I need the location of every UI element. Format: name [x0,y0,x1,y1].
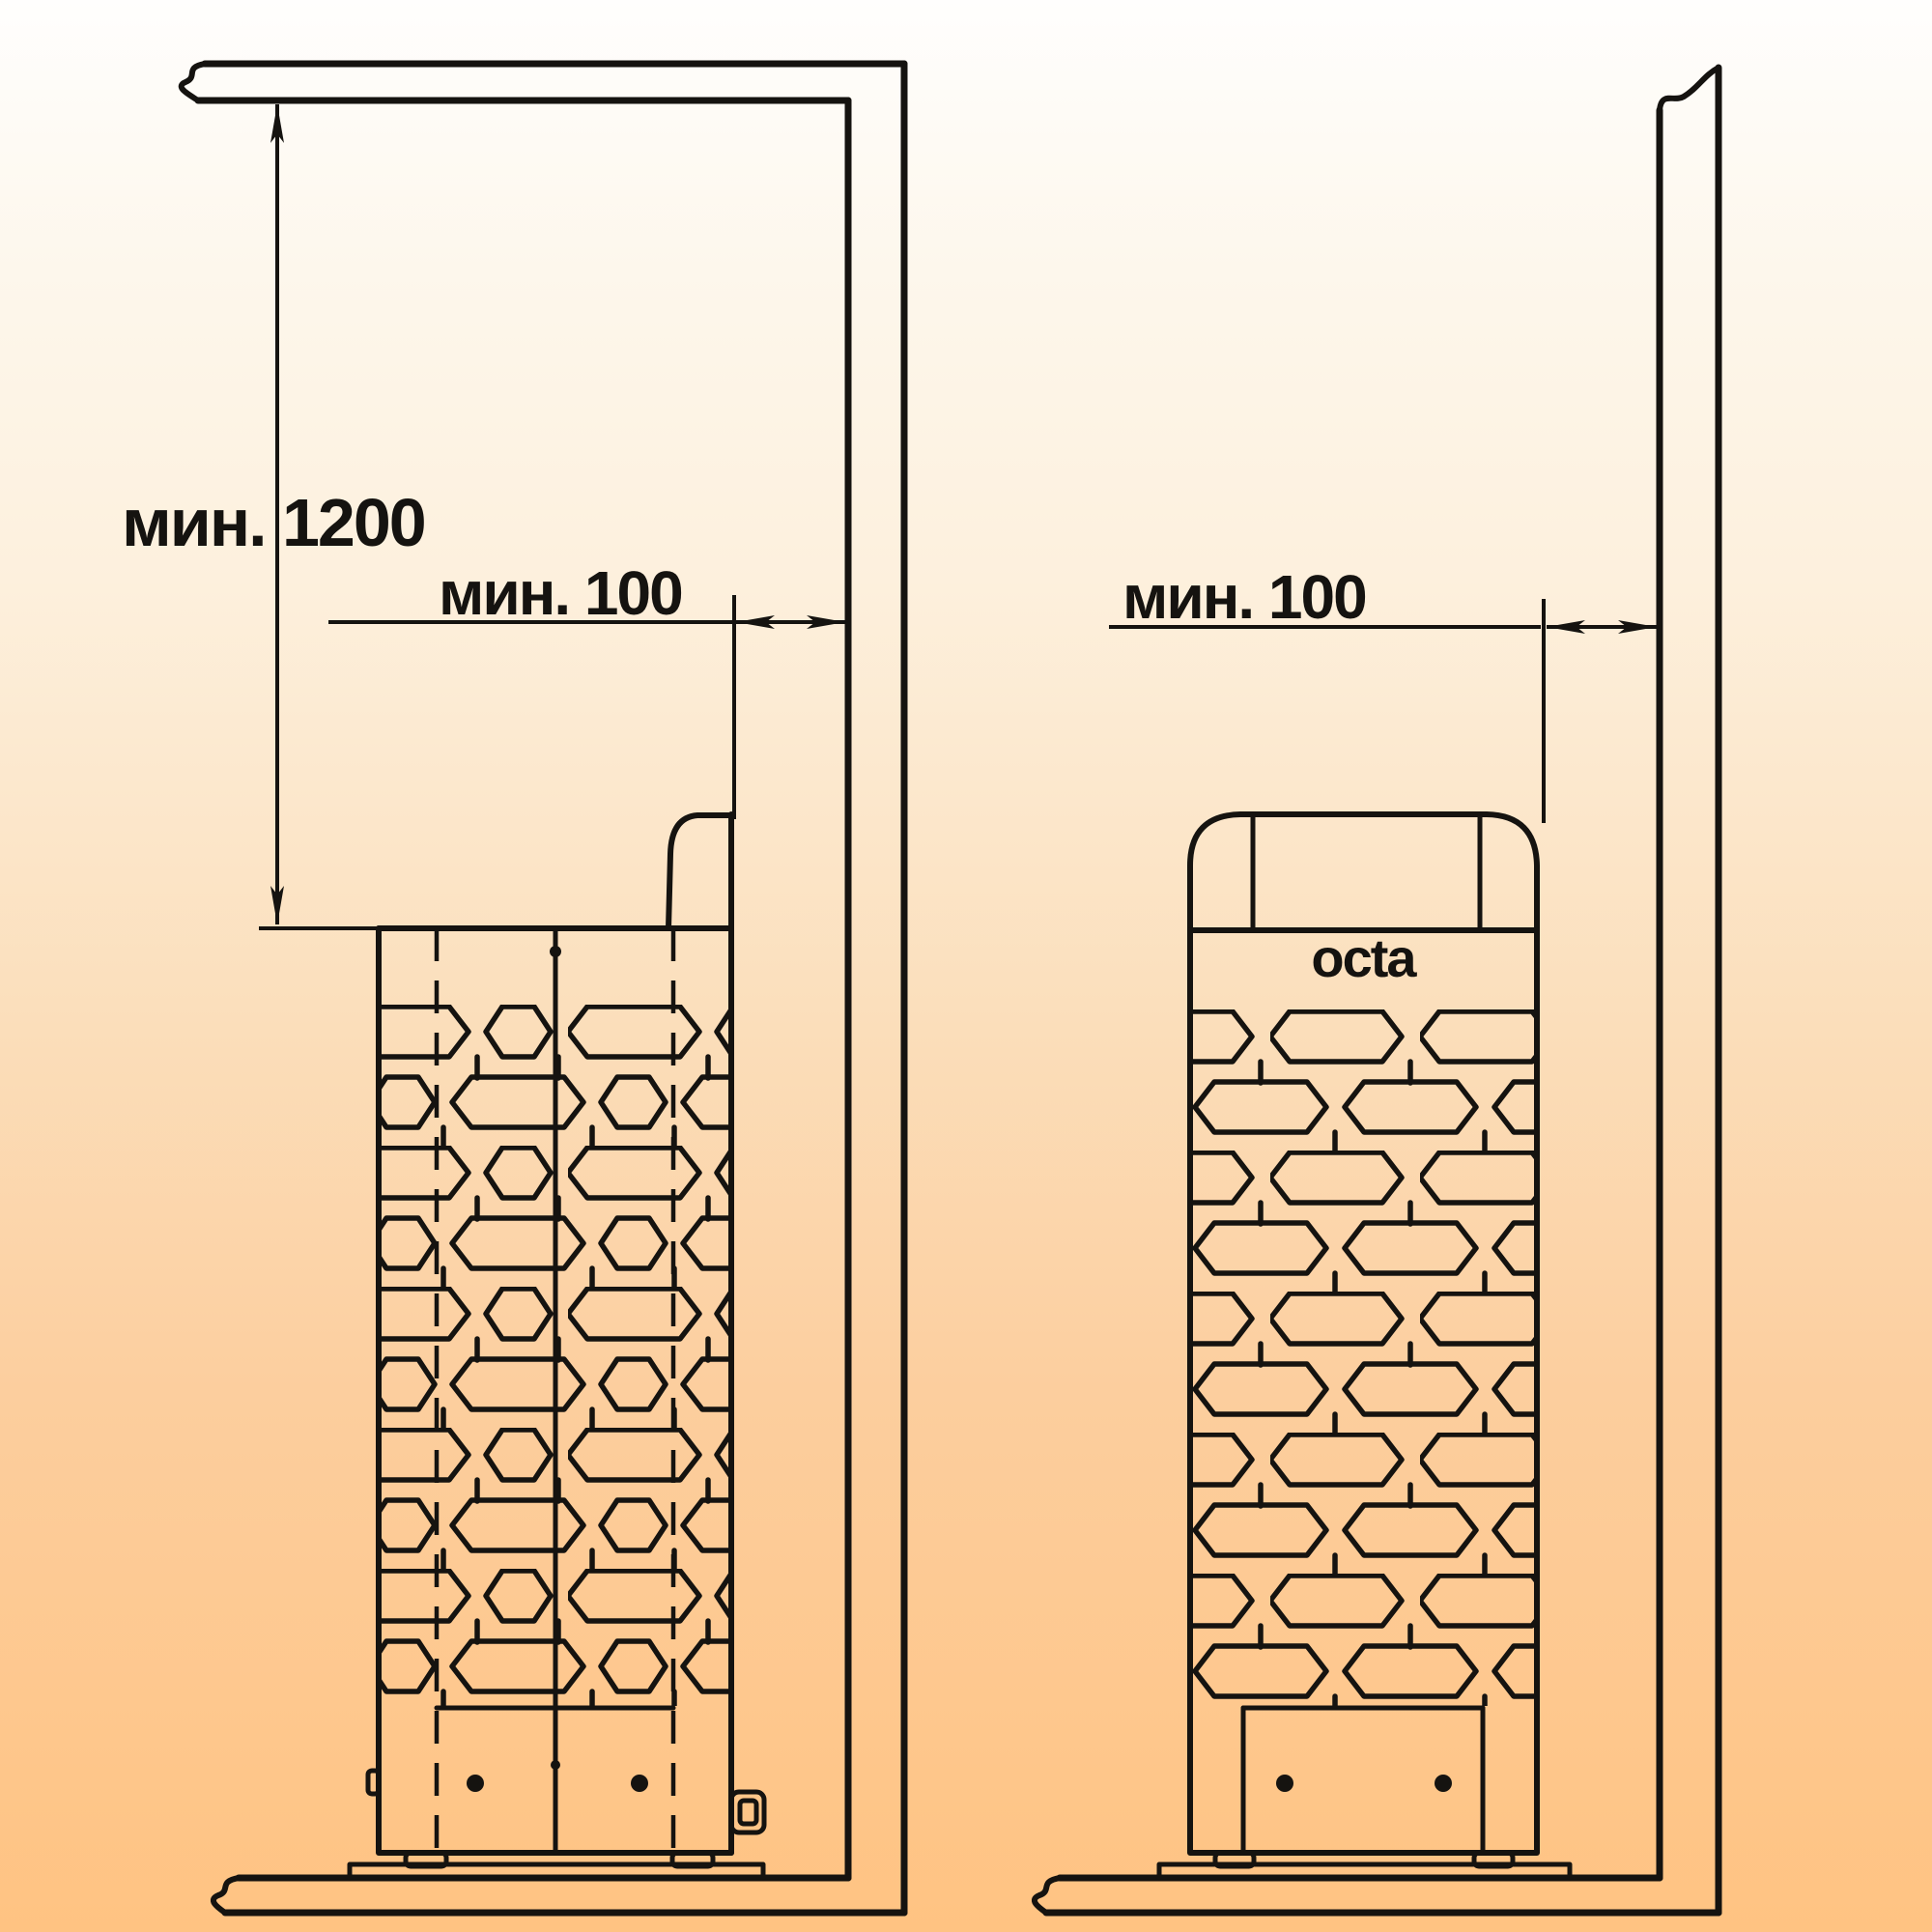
ceiling [182,64,904,100]
line-art [0,0,1932,1932]
base-screw [1276,1775,1293,1792]
top-cap [1190,814,1537,930]
left-view [182,64,904,1913]
heater-side-view [259,814,764,1878]
horizontal-dimension-min-100-right [1109,599,1657,823]
wall-section-left-view [848,64,904,1913]
min-wall-clearance-label-left: мин. 100 [439,562,682,624]
floor-left-view [213,1878,904,1913]
base-screw [631,1775,648,1792]
floor-break-mark [1035,1878,1060,1913]
floor-break-mark [213,1878,239,1913]
stone-grill-lattice [1193,1009,1534,1706]
base-screw [1435,1775,1452,1792]
right-view [1035,68,1719,1913]
wall-break-mark [1660,68,1719,110]
min-height-clearance-label: мин. 1200 [122,489,425,556]
octa-brand-logo: octa [1286,931,1440,985]
cable-connector [731,1792,764,1833]
floor-right-view [1035,1878,1719,1913]
air-deflector [668,815,731,928]
wall-section-right-view [1660,68,1719,1913]
stone-grill-lattice [381,1005,728,1706]
sauna-heater-installation-diagram: мин. 1200 мин. 100 мин. 100 octa [0,0,1932,1932]
base-screw [467,1775,484,1792]
ceiling-break-mark [182,64,205,100]
side-latch [368,1771,379,1794]
horizontal-dimension-min-100-left [328,595,845,819]
min-wall-clearance-label-right: мин. 100 [1122,566,1366,628]
